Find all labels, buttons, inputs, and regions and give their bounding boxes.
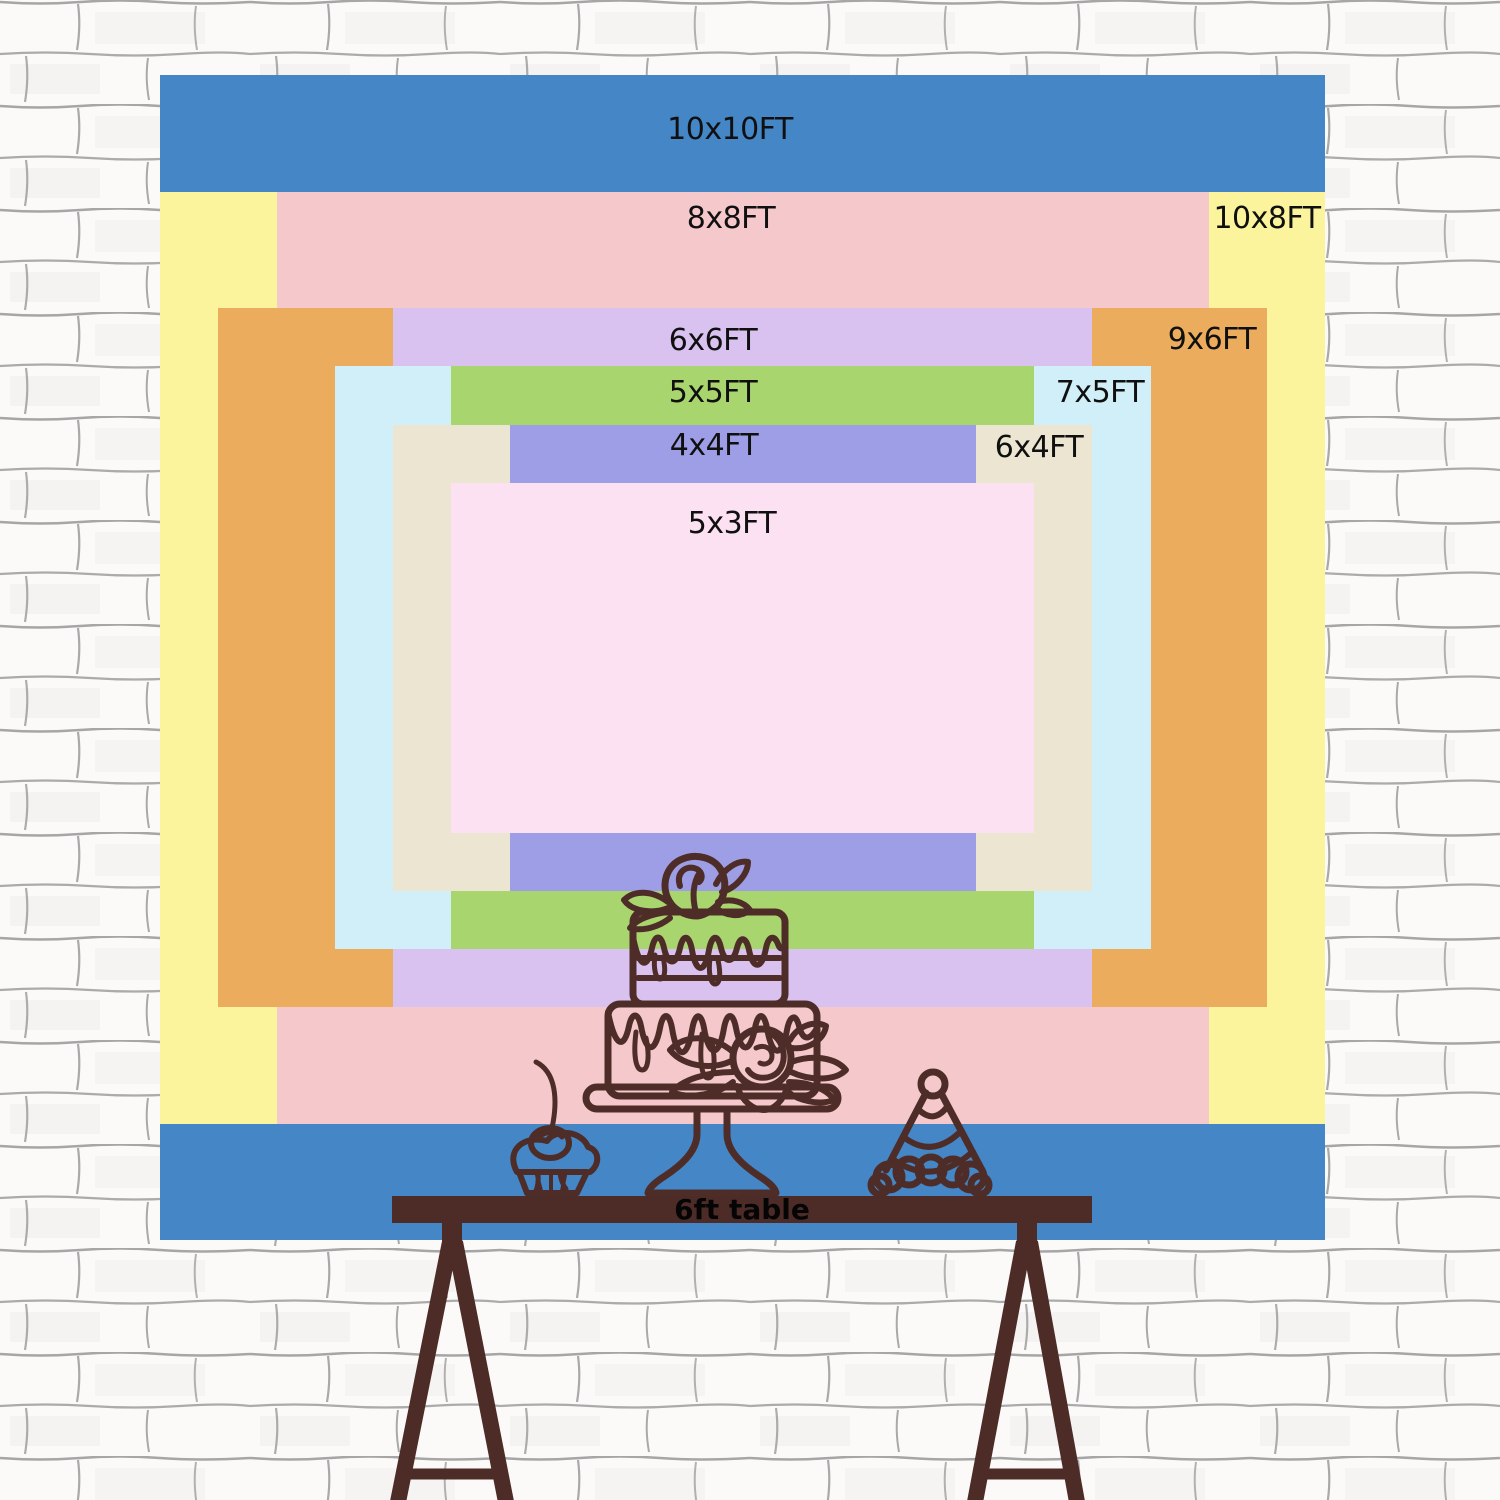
size-label-9x6ft: 9x6FT (1168, 322, 1256, 357)
backdrop-size-chart-scene: 10x10FT 8x8FT 10x8FT 6x6FT 9x6FT 5x5FT 7… (0, 0, 1500, 1500)
size-label-10x8ft: 10x8FT (1213, 201, 1320, 236)
table-label: 6ft table (674, 1196, 810, 1223)
size-label-4x4ft: 4x4FT (670, 428, 758, 463)
size-label-5x3ft: 5x3FT (688, 506, 776, 541)
size-label-8x8ft: 8x8FT (687, 201, 775, 236)
size-label-6x6ft: 6x6FT (669, 323, 757, 358)
table-bar: 6ft table (392, 1196, 1092, 1223)
size-label-6x4ft: 6x4FT (995, 430, 1083, 465)
backdrop-panel (160, 75, 1325, 1240)
size-label-5x5ft: 5x5FT (669, 375, 757, 410)
size-label-7x5ft: 7x5FT (1056, 375, 1144, 410)
size-label-10x10ft: 10x10FT (667, 112, 793, 147)
